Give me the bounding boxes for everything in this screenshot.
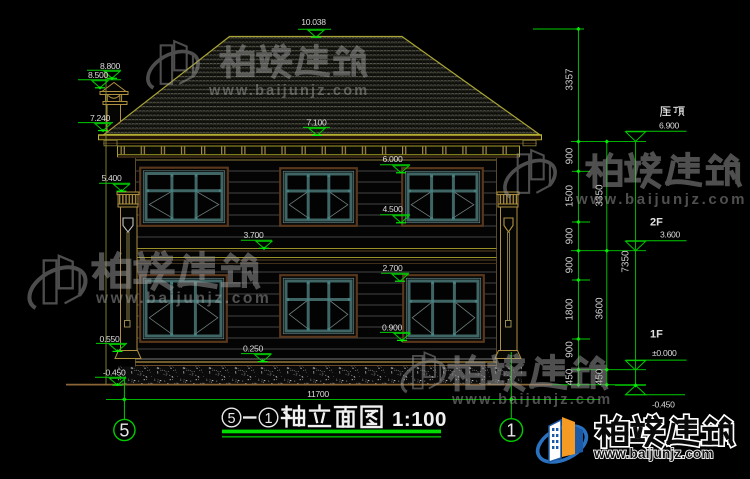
svg-text:1500: 1500 [565, 184, 576, 207]
svg-text:0.900: 0.900 [382, 322, 403, 332]
svg-text:5: 5 [227, 411, 235, 427]
svg-text:2.700: 2.700 [382, 263, 403, 273]
svg-text:1800: 1800 [565, 298, 576, 321]
svg-text:www.baijunjz.com: www.baijunjz.com [451, 392, 612, 408]
svg-text:11700: 11700 [307, 389, 329, 399]
svg-text:-0.450: -0.450 [652, 399, 675, 409]
svg-text:www.baijunjz.com: www.baijunjz.com [575, 191, 747, 208]
svg-text:1: 1 [506, 421, 516, 441]
svg-text:3.700: 3.700 [243, 230, 264, 240]
svg-text:8.500: 8.500 [88, 70, 109, 80]
svg-text:900: 900 [565, 147, 576, 164]
svg-text:3357: 3357 [565, 68, 576, 91]
svg-text:1:100: 1:100 [392, 408, 447, 431]
svg-text:900: 900 [565, 341, 576, 358]
svg-text:4.500: 4.500 [382, 204, 403, 214]
svg-text:900: 900 [565, 227, 576, 244]
svg-text:-0.450: -0.450 [103, 367, 126, 377]
svg-text:3600: 3600 [595, 297, 606, 320]
svg-text:0.250: 0.250 [243, 344, 264, 354]
svg-text:1F: 1F [650, 329, 663, 341]
svg-text:7350: 7350 [621, 250, 632, 273]
svg-text:5.400: 5.400 [101, 173, 122, 183]
svg-text:6.000: 6.000 [382, 154, 403, 164]
svg-text:6.900: 6.900 [659, 121, 680, 131]
svg-text:www.baijunjz.com: www.baijunjz.com [593, 446, 714, 461]
svg-text:1: 1 [264, 411, 272, 427]
svg-text:7.100: 7.100 [306, 117, 327, 127]
svg-text:3.600: 3.600 [660, 230, 681, 240]
svg-text:2F: 2F [650, 217, 663, 229]
svg-text:7.240: 7.240 [90, 113, 111, 123]
svg-text:www.baijunjz.com: www.baijunjz.com [208, 83, 369, 99]
svg-text:±0.000: ±0.000 [652, 348, 677, 358]
svg-text:10.038: 10.038 [301, 17, 326, 27]
svg-text:www.baijunjz.com: www.baijunjz.com [95, 290, 271, 307]
svg-text:900: 900 [565, 256, 576, 273]
svg-text:5: 5 [119, 421, 129, 441]
svg-text:0.550: 0.550 [99, 334, 120, 344]
